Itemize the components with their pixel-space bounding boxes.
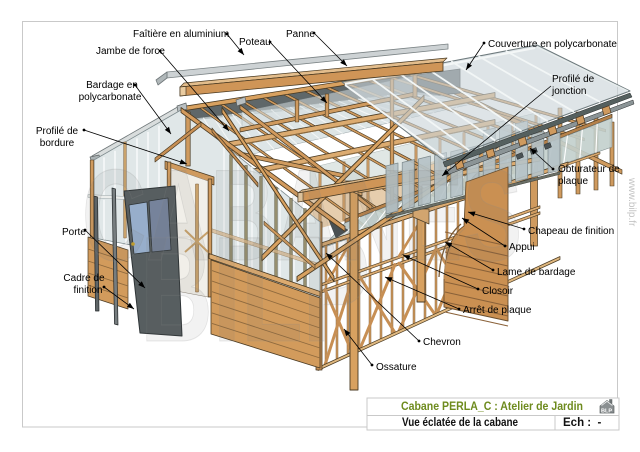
svg-text:finition: finition: [74, 285, 103, 296]
svg-text:Couverture en polycarbonate: Couverture en polycarbonate: [488, 39, 617, 50]
svg-text:plaque: plaque: [558, 176, 588, 187]
svg-text:Cabane PERLA_C : Atelier de Ja: Cabane PERLA_C : Atelier de Jardin: [401, 399, 583, 413]
svg-text:Ech : -: Ech : -: [563, 417, 602, 429]
svg-text:Chevron: Chevron: [423, 337, 461, 348]
svg-text:BILP: BILP: [140, 205, 370, 373]
svg-text:Poteau: Poteau: [239, 37, 271, 48]
svg-text:Cadre de: Cadre de: [63, 273, 105, 284]
svg-text:Jambe de force: Jambe de force: [96, 46, 165, 57]
svg-text:Panne: Panne: [286, 29, 315, 40]
svg-text:jonction: jonction: [551, 86, 586, 97]
svg-text:bordure: bordure: [40, 138, 75, 149]
svg-text:Ossature: Ossature: [376, 362, 417, 373]
svg-text:Chapeau de finition: Chapeau de finition: [528, 226, 614, 237]
svg-text:Bardage en: Bardage en: [86, 80, 138, 91]
svg-text:Closoir: Closoir: [482, 286, 514, 297]
svg-text:Faîtière en aluminium: Faîtière en aluminium: [133, 29, 229, 40]
svg-text:Arrêt de plaque: Arrêt de plaque: [463, 305, 532, 316]
svg-text:Profilé de: Profilé de: [552, 74, 595, 85]
svg-text:Porte: Porte: [62, 227, 86, 238]
svg-text:BLP: BLP: [601, 409, 612, 415]
svg-text:Profilé de: Profilé de: [36, 126, 79, 137]
svg-text:Vue éclatée de la cabane: Vue éclatée de la cabane: [402, 417, 518, 429]
svg-text:www.bilp.fr: www.bilp.fr: [626, 177, 637, 227]
svg-text:Lame de bardage: Lame de bardage: [497, 267, 576, 278]
svg-text:Appui: Appui: [509, 242, 535, 253]
svg-text:polycarbonate: polycarbonate: [79, 92, 142, 103]
svg-text:Obturateur de: Obturateur de: [558, 164, 620, 175]
